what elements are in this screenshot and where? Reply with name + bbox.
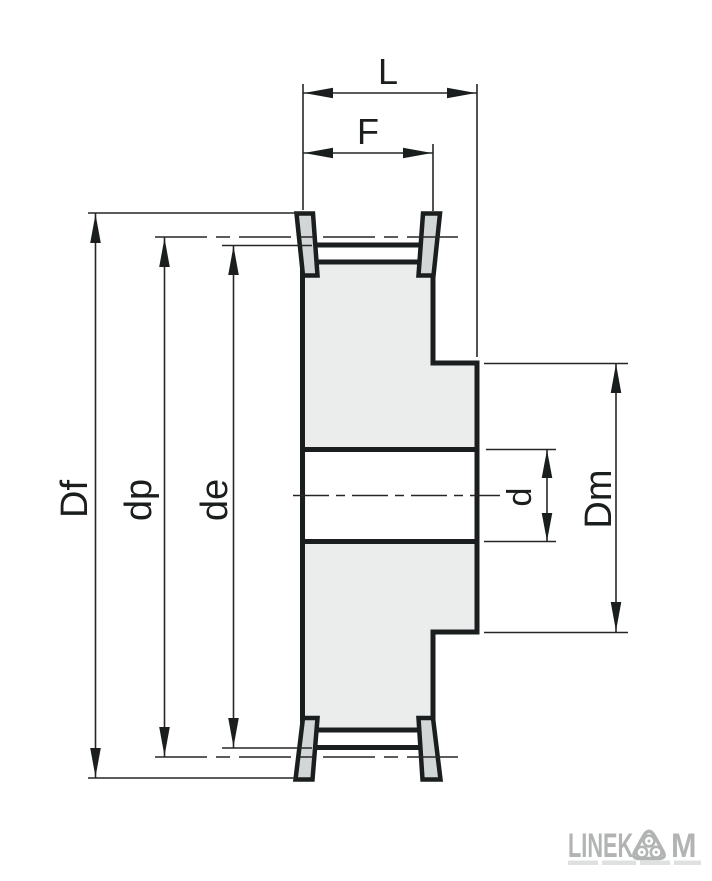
- logo-text-right-group: M: [671, 827, 696, 865]
- icon-roller-right-hole: [655, 851, 658, 854]
- tagline-word-bar: [568, 861, 598, 866]
- icon-roller-top-hole: [648, 840, 651, 843]
- dim-Df-label: Df: [54, 480, 96, 518]
- logo-tagline-illegible: [568, 861, 701, 866]
- tagline-word-bar: [602, 861, 636, 866]
- logo-text-left-group: LINEK: [568, 827, 634, 865]
- pulley-technical-drawing: L F Df dp de d Dm: [0, 0, 712, 881]
- dim-Dm-label: Dm: [578, 469, 620, 528]
- dim-de-label: de: [194, 479, 236, 521]
- logo-text-right: M: [671, 827, 696, 865]
- tagline-word-bar: [640, 861, 670, 866]
- tagline-word-bar: [674, 861, 701, 866]
- logo-text-left: LINEK: [568, 827, 634, 865]
- drawing-page: L F Df dp de d Dm: [0, 0, 712, 881]
- dim-dp-label: dp: [118, 479, 160, 521]
- dim-d-label: d: [501, 488, 539, 507]
- dim-L-label: L: [378, 51, 398, 92]
- pulley-bore: [306, 452, 475, 540]
- dim-F-label: F: [357, 111, 379, 152]
- icon-roller-left-hole: [640, 851, 643, 854]
